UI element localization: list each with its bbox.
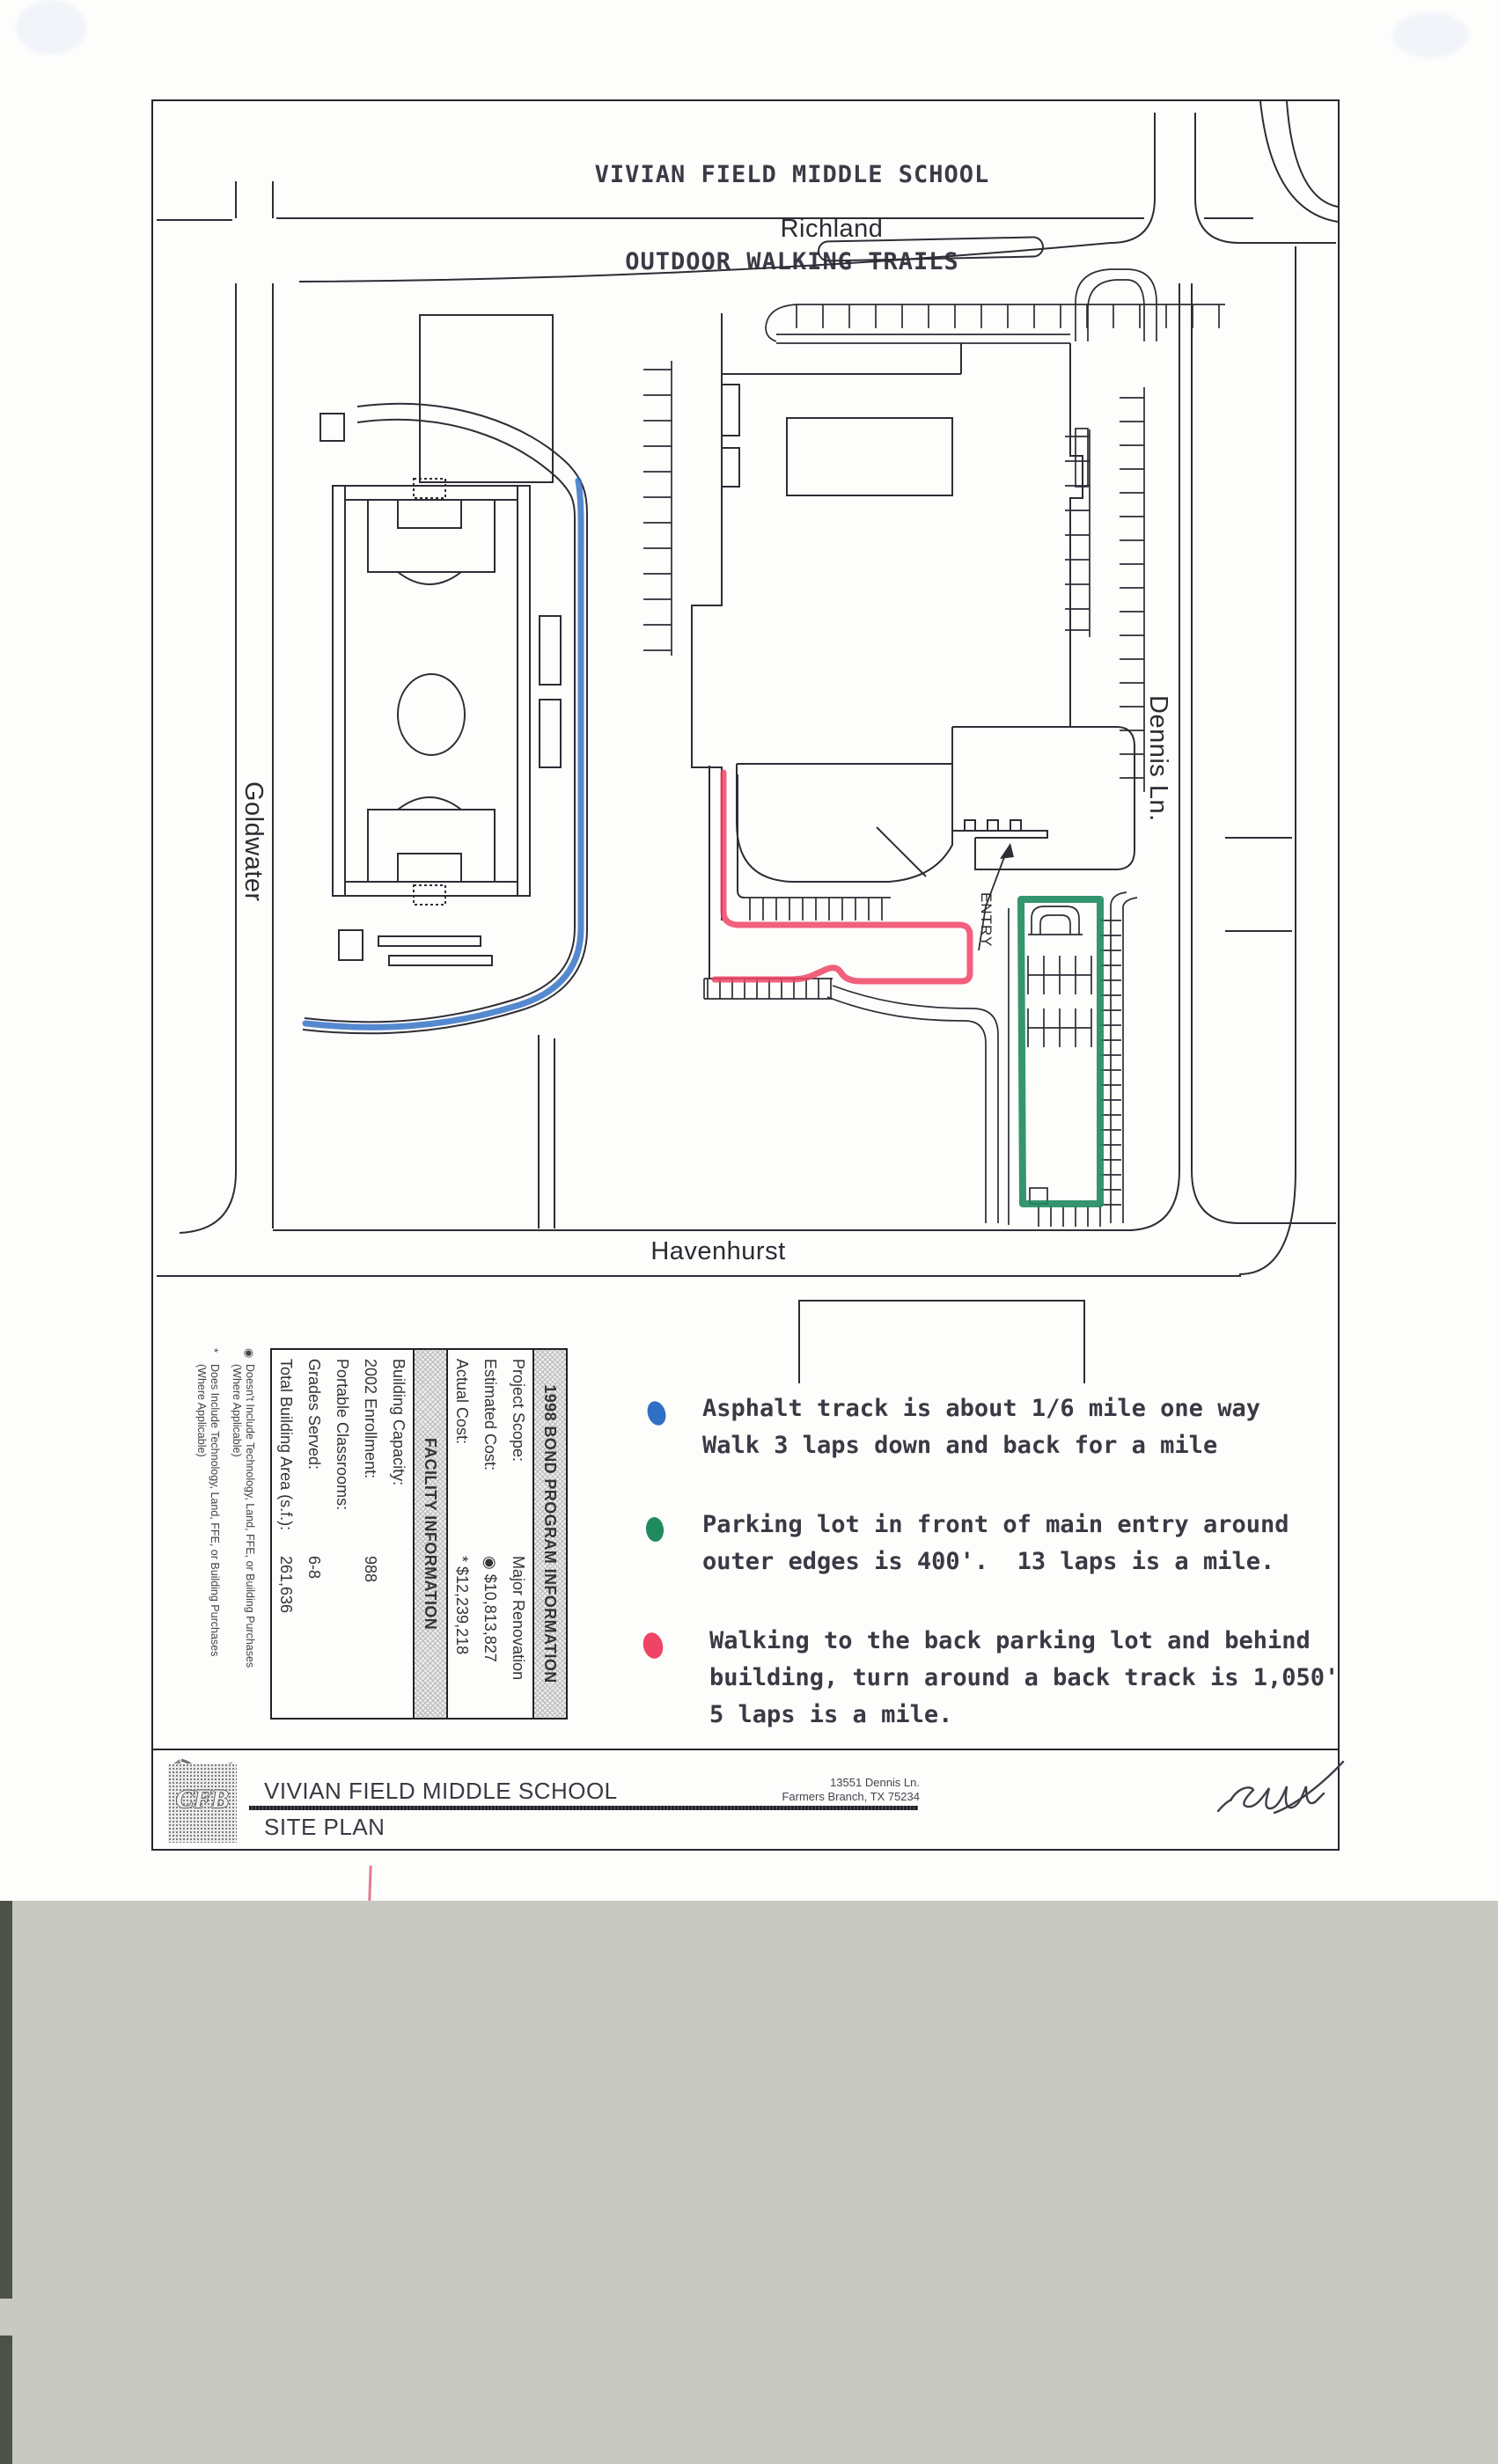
table-row: Total Building Area (s.f.): 261,636 xyxy=(272,1350,300,1718)
street-label-richland: Richland xyxy=(744,215,920,244)
legend-dots xyxy=(641,1399,669,1661)
street-label-dennis-ln: Dennis Ln. xyxy=(1143,695,1172,822)
footnote: * Does Include Technology, Land, FFE, or… xyxy=(195,1348,221,1718)
row-value: Major Renovation xyxy=(510,1556,528,1711)
footer-school-name: VIVIAN FIELD MIDDLE SCHOOL xyxy=(264,1778,618,1805)
footnote-text: Doesn't Include Technology, Land, FFE, o… xyxy=(243,1364,256,1668)
table-row: Actual Cost: * $12,239,218 xyxy=(448,1350,476,1718)
row-value: * $12,239,218 xyxy=(453,1556,472,1711)
cfb-district-logo: CFB xyxy=(168,1764,237,1843)
row-label: Grades Served: xyxy=(305,1359,324,1556)
row-label: 2002 Enrollment: xyxy=(362,1359,380,1556)
row-value: 988 xyxy=(362,1556,380,1711)
legend-red-line2: building, turn around a back track is 1,… xyxy=(709,1660,1339,1697)
row-value: ◉ $10,813,827 xyxy=(481,1556,500,1711)
legend-blue-line1: Asphalt track is about 1/6 mile one way xyxy=(702,1390,1260,1427)
south-building xyxy=(799,1301,1084,1383)
red-trail-dot xyxy=(641,1631,666,1661)
row-label: Portable Classrooms: xyxy=(334,1359,352,1556)
street-lines xyxy=(157,101,1338,1276)
address-line2: Farmers Branch, TX 75234 xyxy=(704,1790,920,1804)
green-trail-dot xyxy=(645,1516,665,1543)
table-row: Grades Served: 6-8 xyxy=(300,1350,328,1718)
athletic-field xyxy=(320,414,561,965)
bleacher xyxy=(540,700,561,767)
blue-trail-dot xyxy=(644,1399,669,1428)
scanned-site-plan-page: VIVIAN FIELD MIDDLE SCHOOL OUTDOOR WALKI… xyxy=(0,0,1498,2464)
school-buildings xyxy=(420,313,1135,1383)
footnote: ◉ Doesn't Include Technology, Land, FFE,… xyxy=(230,1348,256,1718)
footnote-text2: (Where Applicable) xyxy=(230,1364,243,1668)
street-label-havenhurst: Havenhurst xyxy=(630,1237,806,1266)
row-value: 261,636 xyxy=(277,1556,296,1711)
table-footnotes: ◉ Doesn't Include Technology, Land, FFE,… xyxy=(195,1348,256,1718)
footer-address: 13551 Dennis Ln. Farmers Branch, TX 7523… xyxy=(704,1776,920,1804)
table-row: Building Capacity: xyxy=(385,1350,413,1718)
row-label: Project Scope: xyxy=(510,1359,528,1556)
legend-green-line1: Parking lot in front of main entry aroun… xyxy=(702,1507,1289,1544)
legend-green-line2: outer edges is 400'. 13 laps is a mile. xyxy=(702,1544,1274,1580)
street-label-goldwater: Goldwater xyxy=(239,781,268,902)
footer-rule xyxy=(249,1806,918,1810)
row-label: Building Capacity: xyxy=(390,1359,408,1556)
site-plan-drawing xyxy=(0,0,1498,2464)
main-entry-building xyxy=(952,727,1135,869)
parking-striping xyxy=(643,269,1225,1227)
cfb-logo-text: CFB xyxy=(175,1785,230,1815)
table-row: Estimated Cost: ◉ $10,813,827 xyxy=(476,1350,504,1718)
table-row: Project Scope: Major Renovation xyxy=(504,1350,532,1718)
row-label: Estimated Cost: xyxy=(481,1359,500,1556)
northwest-building xyxy=(420,315,553,482)
facility-info-table: 1998 BOND PROGRAM INFORMATION Project Sc… xyxy=(270,1348,568,1720)
table-row: 2002 Enrollment: 988 xyxy=(356,1350,385,1718)
address-line1: 13551 Dennis Ln. xyxy=(704,1776,920,1790)
row-value: 6-8 xyxy=(305,1556,324,1711)
signature-scribble xyxy=(1218,1762,1343,1813)
entry-label: ENTRY xyxy=(977,892,995,947)
bond-program-header: 1998 BOND PROGRAM INFORMATION xyxy=(532,1350,566,1718)
row-label: Actual Cost: xyxy=(453,1359,472,1556)
courtyard-structure xyxy=(787,418,952,495)
facility-info-header: FACILITY INFORMATION xyxy=(413,1350,448,1718)
legend-red-line3: 5 laps is a mile. xyxy=(709,1697,952,1734)
red-back-track-trail xyxy=(715,773,970,981)
footnote-text: Does Include Technology, Land, FFE, or B… xyxy=(208,1364,221,1656)
legend-blue-line2: Walk 3 laps down and back for a mile xyxy=(702,1427,1217,1464)
green-parking-loop-trail xyxy=(1021,899,1100,1204)
table-row: Portable Classrooms: xyxy=(328,1350,356,1718)
facility-info-block: 1998 BOND PROGRAM INFORMATION Project Sc… xyxy=(119,1348,568,1718)
legend-red-line1: Walking to the back parking lot and behi… xyxy=(709,1623,1311,1660)
footer-sheet-name: SITE PLAN xyxy=(264,1814,385,1841)
row-label: Total Building Area (s.f.): xyxy=(277,1359,296,1556)
footnote-text2: (Where Applicable) xyxy=(195,1364,208,1656)
footnote-symbol: * xyxy=(195,1348,221,1364)
bleacher xyxy=(540,616,561,685)
footnote-symbol: ◉ xyxy=(230,1348,256,1364)
